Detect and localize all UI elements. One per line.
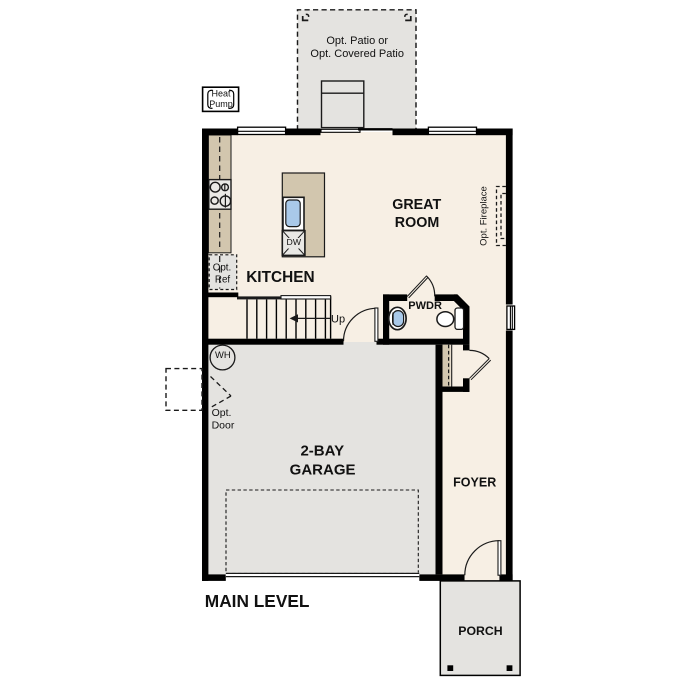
svg-text:Opt. Fireplace: Opt. Fireplace [478,186,489,246]
svg-text:Heat: Heat [211,88,231,98]
svg-text:GARAGE: GARAGE [290,462,356,479]
svg-text:DW: DW [287,237,302,247]
svg-text:2-BAY: 2-BAY [300,442,344,459]
svg-text:PORCH: PORCH [458,624,503,638]
svg-text:GREAT: GREAT [392,197,441,213]
svg-text:Pump: Pump [209,99,233,109]
svg-text:Ref: Ref [215,275,231,286]
svg-text:Opt. Covered Patio: Opt. Covered Patio [310,48,404,60]
svg-text:WH: WH [215,349,231,360]
svg-text:Opt.: Opt. [213,263,232,274]
svg-text:ROOM: ROOM [395,215,439,231]
svg-text:MAIN LEVEL: MAIN LEVEL [205,591,310,611]
svg-text:KITCHEN: KITCHEN [246,269,314,286]
svg-text:FOYER: FOYER [453,476,496,490]
svg-text:Opt. Patio or: Opt. Patio or [326,35,388,47]
svg-text:Up: Up [331,314,345,326]
svg-text:Opt.: Opt. [212,407,232,419]
svg-text:Door: Door [212,420,235,432]
svg-text:PWDR: PWDR [408,300,442,312]
